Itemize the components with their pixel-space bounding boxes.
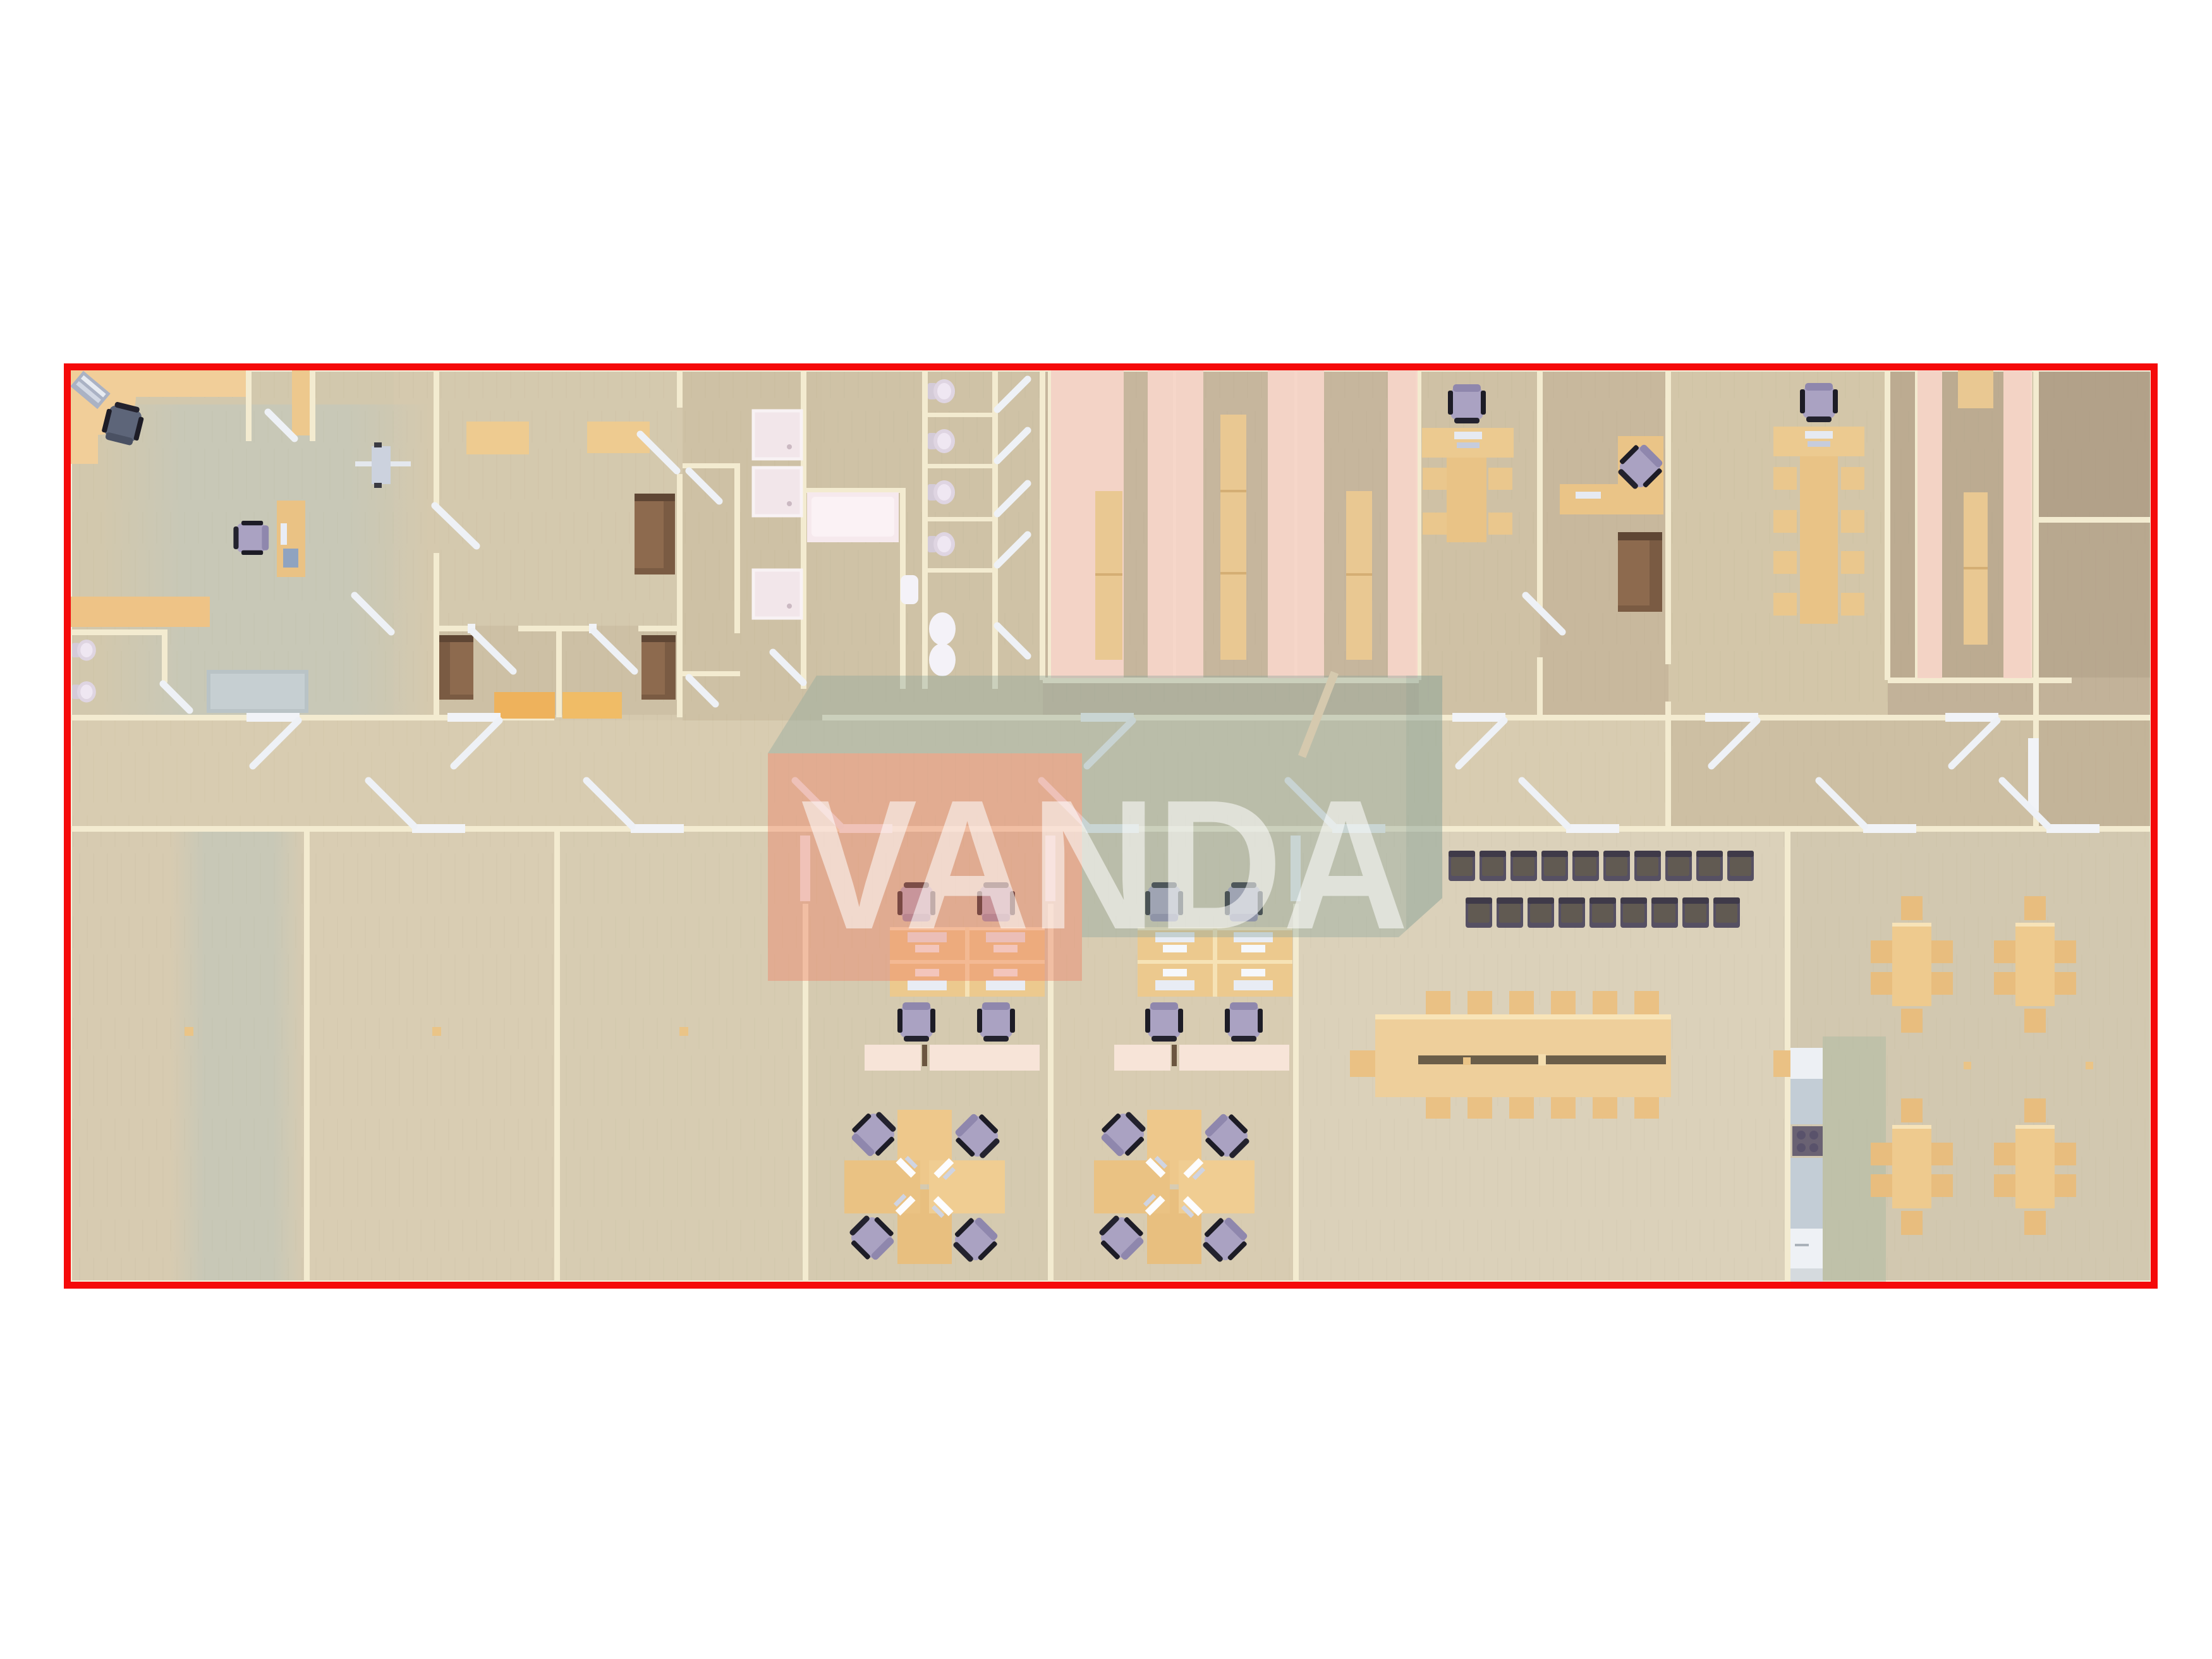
- svg-text:VANDA: VANDA: [801, 762, 1409, 968]
